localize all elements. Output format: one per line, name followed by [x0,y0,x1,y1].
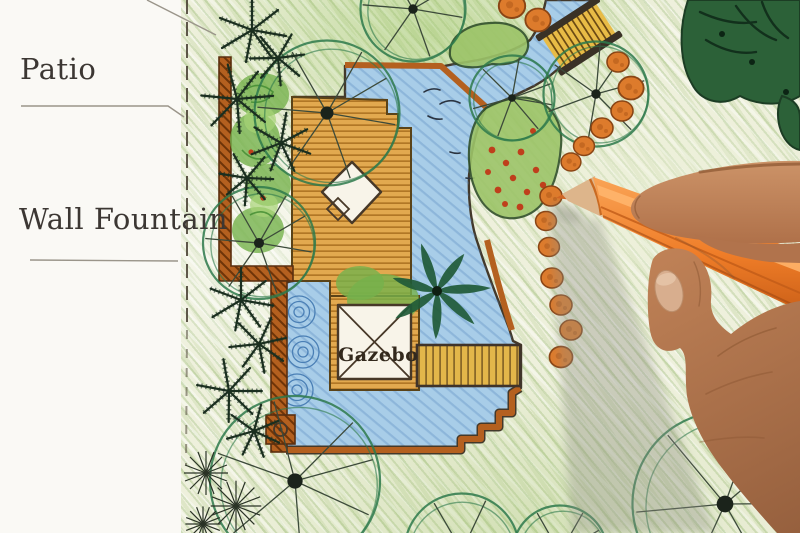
leader-line-patio [21,106,184,117]
label-wall-fountain: Wall Fountain [19,202,228,236]
leader-line-top [147,0,216,35]
landscape-plan-drawing [0,0,800,533]
label-patio: Patio [20,52,96,86]
grass-starburst [184,451,228,495]
leader-line-wall-fountain [30,260,178,261]
photo-of-landscape-plan: Patio Wall Fountain Gazebo [0,0,800,533]
boardwalk-steps [417,345,520,386]
label-gazebo: Gazebo [338,344,412,366]
top-right-bush [682,0,800,150]
